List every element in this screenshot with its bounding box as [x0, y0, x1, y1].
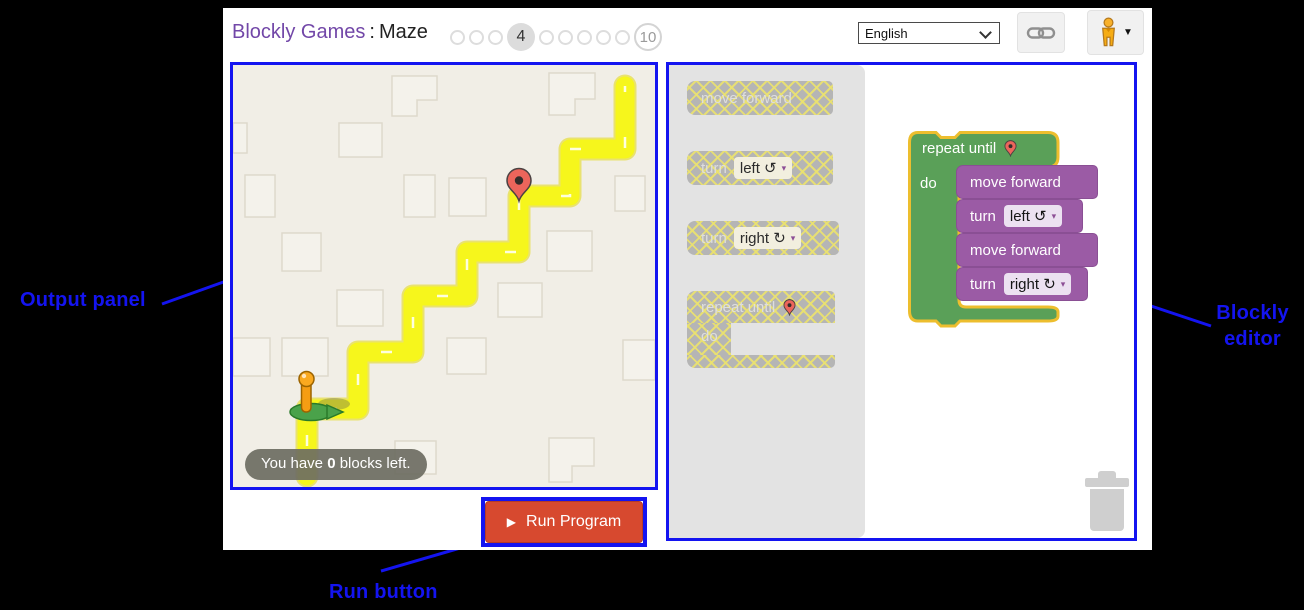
block-move-forward-2[interactable]: move forward	[956, 233, 1098, 267]
toolbox-block-move-forward[interactable]: move forward	[687, 81, 833, 115]
turn-left-dropdown[interactable]: left ↺▾	[1004, 205, 1062, 227]
brand-link[interactable]: Blockly Games	[232, 21, 365, 43]
level-selector: 4 10	[450, 22, 662, 52]
run-button-highlight: ▶ Run Program	[481, 497, 647, 547]
page-title: Blockly Games:Maze	[232, 21, 428, 44]
level-dot-8[interactable]	[596, 30, 611, 45]
turn-left-dropdown[interactable]: left ↺▾	[734, 157, 792, 179]
dropdown-arrow-icon: ▾	[791, 233, 796, 244]
turn-right-dropdown[interactable]: right ↻▾	[734, 227, 801, 249]
marker-pin-icon	[1004, 140, 1017, 157]
play-icon: ▶	[507, 515, 516, 529]
link-button[interactable]	[1017, 12, 1065, 53]
level-dot-6[interactable]	[558, 30, 573, 45]
turn-right-dropdown[interactable]: right ↻▾	[1004, 273, 1071, 295]
link-icon	[1026, 24, 1056, 41]
block-turn-left[interactable]: turn left ↺▾	[956, 199, 1083, 233]
maze-canvas	[233, 65, 655, 487]
blocks-left-tooltip: You have 0 blocks left.	[245, 449, 427, 480]
language-select-value: English	[865, 26, 908, 41]
level-dot-10[interactable]: 10	[634, 23, 662, 51]
chevron-down-icon	[979, 26, 992, 39]
level-dot-4-current[interactable]: 4	[507, 23, 535, 51]
level-dot-5[interactable]	[539, 30, 554, 45]
level-dot-1[interactable]	[450, 30, 465, 45]
pegman-menu-button[interactable]: ▼	[1087, 10, 1144, 55]
toolbox-block-turn-left[interactable]: turn left ↺▾	[687, 151, 833, 185]
level-dot-7[interactable]	[577, 30, 592, 45]
toolbox-block-repeat-until[interactable]: repeat until do	[687, 291, 835, 368]
level-dot-3[interactable]	[488, 30, 503, 45]
dropdown-arrow-icon: ▾	[782, 163, 787, 174]
repeat-until-block[interactable]: repeat until do move forward turn left ↺…	[908, 131, 1118, 331]
annotation-output-panel: Output panel	[20, 289, 146, 312]
dropdown-arrow-icon: ▾	[1052, 211, 1057, 222]
annotation-run-button: Run button	[329, 581, 438, 604]
screenshot-root: Blockly Games:Maze 4 10 English ▼	[0, 0, 1304, 610]
toolbox-block-turn-right[interactable]: turn right ↻▾	[687, 221, 839, 255]
game-name: Maze	[379, 21, 428, 43]
dropdown-arrow-icon: ▾	[1061, 279, 1066, 290]
trash-icon[interactable]	[1085, 471, 1129, 531]
pegman-icon	[1098, 17, 1119, 48]
player-pegman	[290, 372, 350, 421]
block-turn-right[interactable]: turn right ↻▾	[956, 267, 1088, 301]
title-separator: :	[369, 21, 375, 43]
blockly-editor: move forward turn left ↺▾ turn right ↻▾ …	[666, 62, 1137, 541]
language-select[interactable]: English	[858, 22, 1000, 44]
annotation-blockly-editor: Blockly editor	[1205, 300, 1300, 352]
level-dot-9[interactable]	[615, 30, 630, 45]
output-panel: You have 0 blocks left.	[230, 62, 658, 490]
level-dot-2[interactable]	[469, 30, 484, 45]
marker-pin-icon	[783, 299, 796, 316]
caret-down-icon: ▼	[1123, 27, 1133, 38]
toolbox-flyout: move forward turn left ↺▾ turn right ↻▾ …	[669, 65, 865, 538]
block-move-forward-1[interactable]: move forward	[956, 165, 1098, 199]
run-program-button[interactable]: ▶ Run Program	[485, 501, 643, 543]
